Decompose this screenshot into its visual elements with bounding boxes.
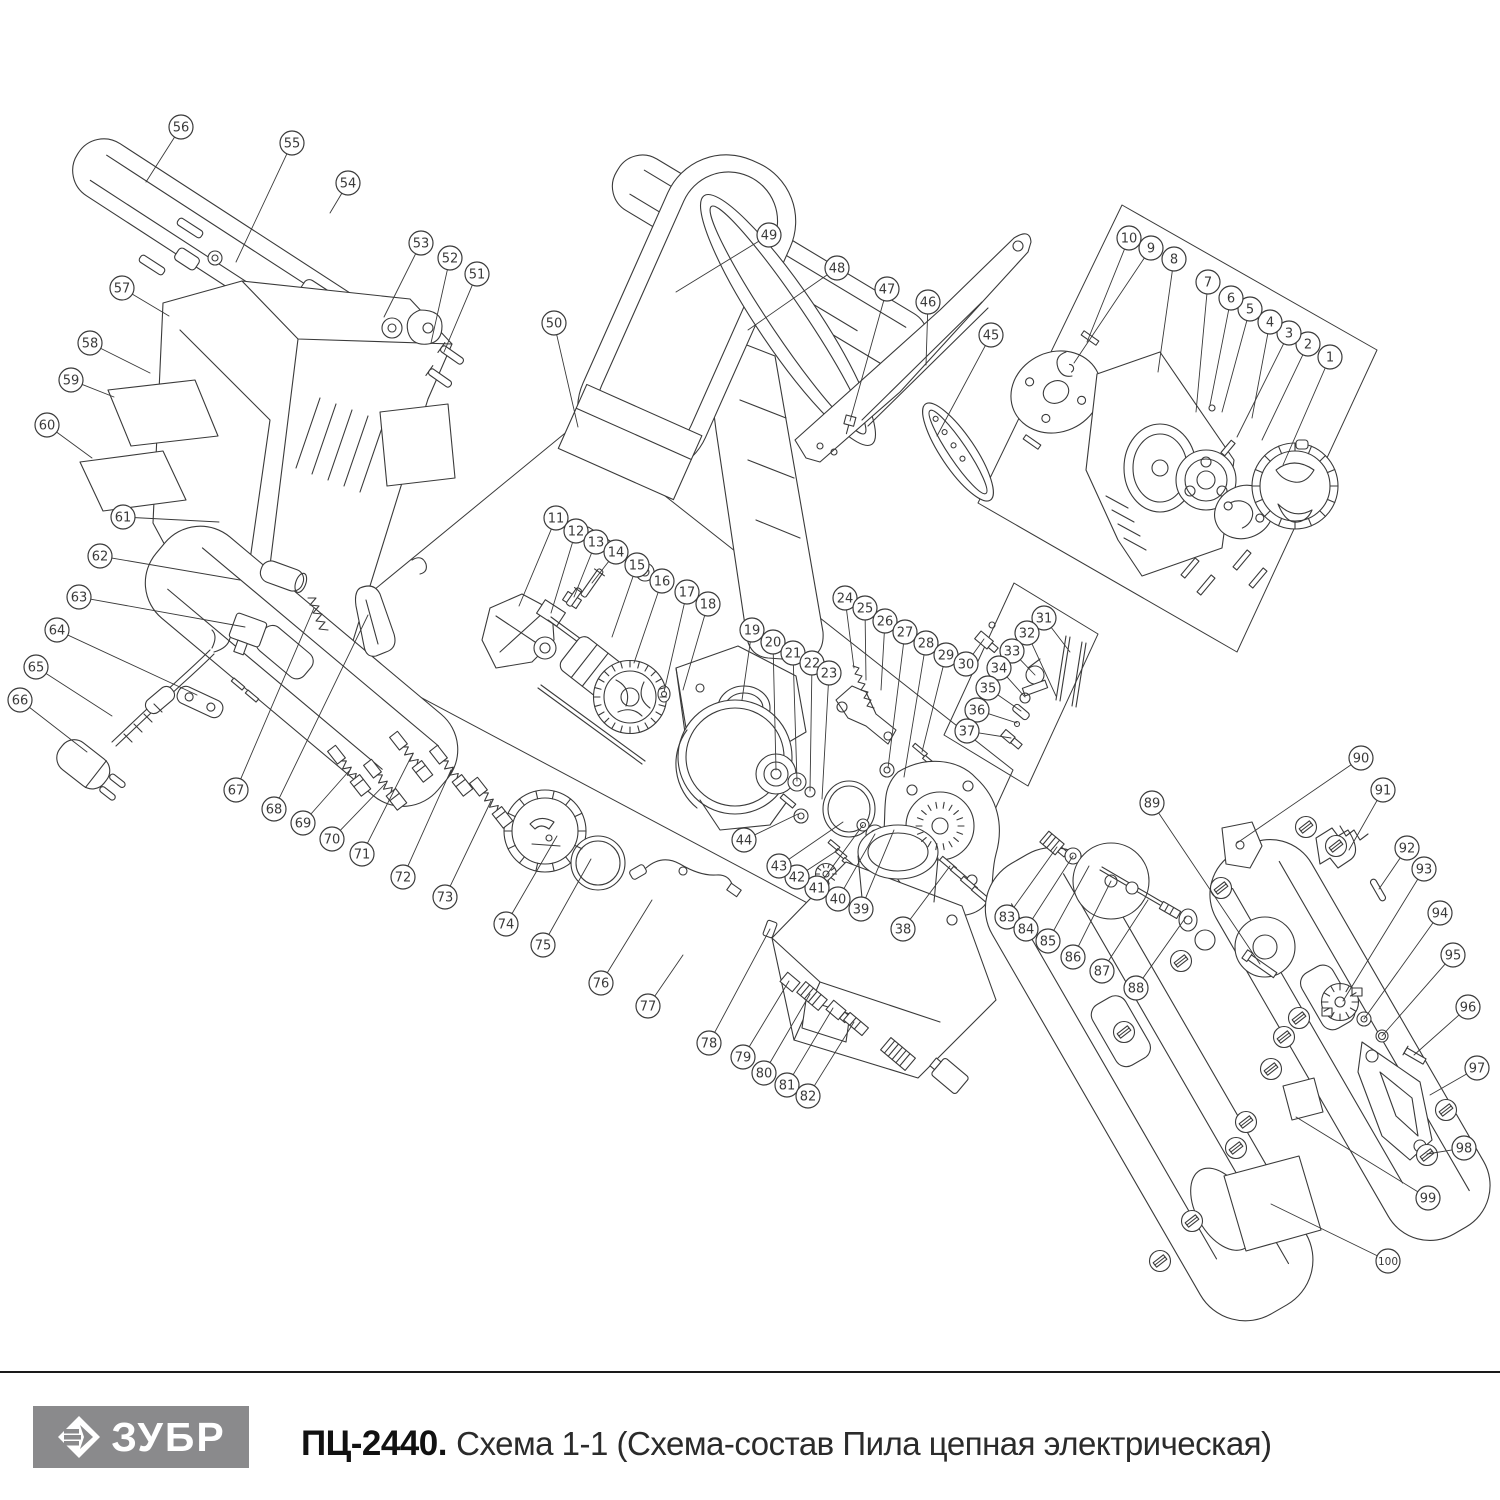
callout-7: 7	[1196, 270, 1220, 412]
callout-leader	[1252, 334, 1268, 418]
callout-number: 73	[437, 891, 454, 906]
callout-number: 10	[1121, 232, 1138, 247]
callout-number: 18	[700, 598, 717, 613]
callout-number: 95	[1445, 949, 1462, 964]
callout-92: 92	[1379, 836, 1419, 889]
callout-number: 21	[785, 647, 802, 662]
part-oring	[571, 836, 625, 890]
callout-number: 75	[535, 939, 552, 954]
callout-leader	[1074, 258, 1144, 363]
callout-28: 28	[904, 631, 938, 777]
callout-number: 66	[12, 694, 29, 709]
callout-number: 58	[82, 337, 99, 352]
callout-number: 86	[1065, 951, 1082, 966]
screw-symbol	[1150, 1251, 1171, 1272]
callout-number: 42	[789, 871, 806, 886]
callout-9: 9	[1074, 236, 1163, 363]
screw-symbol	[1261, 1059, 1282, 1080]
callout-leader	[998, 695, 1021, 711]
callout-number: 68	[266, 803, 283, 818]
callout-number: 35	[980, 682, 997, 697]
callout-leader	[715, 929, 770, 1032]
callout-number: 84	[1018, 923, 1035, 938]
callout-number: 13	[588, 536, 605, 551]
callout-number: 64	[49, 624, 66, 639]
callout-number: 41	[809, 882, 826, 897]
callout-16: 16	[634, 569, 674, 663]
callout-number: 43	[771, 860, 788, 875]
callout-36: 36	[965, 698, 1017, 723]
callout-leader	[519, 529, 551, 606]
callout-number: 88	[1128, 982, 1145, 997]
callout-number: 28	[918, 637, 935, 652]
callout-leader	[68, 635, 197, 695]
callout-number: 31	[1036, 612, 1053, 627]
callout-76: 76	[589, 900, 652, 995]
part-chain-segment	[911, 394, 1004, 509]
callout-leader	[789, 822, 843, 859]
callout-29: 29	[922, 643, 958, 752]
callout-number: 96	[1460, 1001, 1477, 1016]
callout-leader	[1364, 923, 1433, 1019]
callout-number: 72	[395, 871, 412, 886]
callout-number: 11	[548, 512, 565, 527]
callout-number: 23	[821, 667, 838, 682]
callout-number: 65	[28, 661, 45, 676]
callout-leader	[749, 981, 789, 1047]
callout-leader	[888, 644, 904, 768]
callout-leader	[1051, 628, 1070, 652]
callout-number: 16	[654, 575, 671, 590]
callout-2: 2	[1262, 332, 1320, 440]
callout-leader	[607, 900, 652, 973]
callout-number: 4	[1266, 316, 1274, 331]
callout-leader	[634, 592, 658, 663]
callout-number: 77	[640, 1000, 657, 1015]
callout-number: 36	[969, 704, 986, 719]
callout-number: 45	[983, 329, 1000, 344]
callout-number: 91	[1375, 784, 1392, 799]
callout-number: 59	[63, 374, 80, 389]
callout-number: 87	[1094, 965, 1111, 980]
zubr-diamond-icon	[56, 1414, 102, 1460]
callout-leader	[444, 285, 472, 352]
callout-91: 91	[1349, 778, 1395, 850]
callout-leader	[1379, 858, 1400, 889]
callout-number: 54	[340, 177, 357, 192]
callout-number: 9	[1147, 242, 1155, 257]
callout-number: 71	[354, 848, 371, 863]
callout-70: 70	[320, 784, 385, 851]
callout-leader	[1196, 294, 1207, 412]
brand-name: ЗУБР	[111, 1417, 225, 1458]
callout-94: 94	[1364, 901, 1452, 1019]
callout-number: 50	[546, 317, 563, 332]
callout-number: 63	[71, 591, 88, 606]
callout-number: 8	[1170, 253, 1178, 268]
screw-symbol	[1436, 1100, 1457, 1121]
screw-symbol	[1171, 951, 1192, 972]
callout-number: 74	[498, 918, 515, 933]
screw-symbol	[1296, 817, 1317, 838]
callout-number: 56	[173, 121, 190, 136]
callout-leader	[822, 685, 828, 799]
callout-26: 26	[873, 609, 897, 690]
callout-number: 46	[920, 296, 937, 311]
callout-69: 69	[291, 771, 349, 835]
callout-number: 24	[837, 592, 854, 607]
callout-leader	[1414, 1015, 1459, 1055]
callout-number: 44	[736, 834, 753, 849]
callout-leader	[988, 714, 1017, 723]
callout-leader	[29, 707, 87, 752]
screw-symbol	[1326, 836, 1347, 857]
callout-number: 79	[735, 1051, 752, 1066]
callout-number: 57	[114, 282, 131, 297]
callout-number: 55	[284, 137, 301, 152]
callout-number: 93	[1416, 863, 1433, 878]
callout-24: 24	[833, 586, 857, 668]
callout-66: 66	[8, 688, 87, 752]
callout-number: 90	[1353, 752, 1370, 767]
callout-65: 65	[24, 655, 112, 716]
screw-symbol	[1182, 1211, 1203, 1232]
model-number: ПЦ-2440.	[301, 1424, 447, 1463]
callout-leader	[311, 771, 349, 814]
screw-symbol	[1114, 1022, 1135, 1043]
callout-leader	[655, 955, 683, 996]
callout-73: 73	[433, 801, 491, 909]
footer-divider	[0, 1371, 1500, 1373]
callout-leader	[1237, 344, 1284, 437]
callout-leader	[450, 801, 491, 886]
callout-leader	[101, 348, 150, 373]
callout-number: 80	[756, 1067, 773, 1082]
callout-leader	[1382, 964, 1445, 1036]
callout-number: 27	[897, 626, 914, 641]
callout-leader	[881, 633, 884, 690]
part-power-cord	[51, 630, 230, 806]
callout-number: 67	[228, 784, 245, 799]
callout-77: 77	[636, 955, 683, 1018]
callout-60: 60	[35, 413, 92, 458]
callout-number: 52	[442, 252, 459, 267]
zubr-logo: ЗУБР	[33, 1406, 249, 1468]
screw-symbol	[1274, 1027, 1295, 1048]
callout-number: 100	[1378, 1256, 1398, 1268]
callout-number: 81	[779, 1079, 796, 1094]
callout-leader	[1222, 321, 1247, 412]
callout-number: 29	[938, 649, 955, 664]
callout-leader	[810, 675, 812, 791]
callout-leader	[847, 610, 854, 668]
screw-symbol	[1226, 1138, 1247, 1159]
callout-number: 47	[879, 283, 896, 298]
callout-number: 38	[895, 923, 912, 938]
screw-symbol	[1289, 1008, 1310, 1029]
callout-number: 40	[830, 893, 847, 908]
callout-leader	[922, 667, 943, 752]
callout-number: 83	[999, 911, 1016, 926]
callout-number: 94	[1432, 907, 1449, 922]
callout-number: 17	[679, 586, 696, 601]
screw-symbol	[1236, 1112, 1257, 1133]
callout-54: 54	[330, 171, 360, 213]
callout-number: 26	[877, 615, 894, 630]
callout-number: 7	[1204, 276, 1212, 291]
callout-number: 60	[39, 419, 56, 434]
callout-number: 19	[744, 624, 761, 639]
callout-number: 5	[1246, 303, 1254, 318]
callout-50: 50	[542, 311, 578, 427]
callout-number: 2	[1304, 338, 1312, 353]
callout-15: 15	[612, 553, 649, 637]
callout-leader	[865, 620, 866, 680]
callout-number: 61	[115, 511, 132, 526]
callout-leader	[46, 674, 112, 716]
callout-leader	[904, 655, 924, 777]
callout-number: 62	[92, 550, 109, 565]
callout-leader	[57, 432, 92, 458]
callout-number: 39	[853, 903, 870, 918]
part-oil-hose	[629, 860, 742, 897]
callout-number: 1	[1326, 351, 1334, 366]
callout-number: 53	[413, 237, 430, 252]
callout-number: 6	[1227, 292, 1235, 307]
callout-number: 12	[568, 525, 585, 540]
callout-number: 92	[1399, 842, 1416, 857]
callout-number: 76	[593, 977, 610, 992]
callout-number: 85	[1040, 935, 1057, 950]
callout-leader	[1210, 310, 1229, 405]
callout-leader	[1349, 800, 1377, 850]
callout-leader	[557, 335, 578, 427]
callout-number: 34	[991, 662, 1008, 677]
callout-10: 10	[1087, 226, 1141, 342]
screw-symbol	[1417, 1145, 1438, 1166]
callout-number: 3	[1285, 327, 1293, 342]
callout-number: 48	[829, 262, 846, 277]
callout-number: 15	[629, 559, 646, 574]
callout-8: 8	[1158, 247, 1186, 372]
callout-95: 95	[1382, 943, 1465, 1036]
callout-number: 14	[608, 546, 625, 561]
callout-23: 23	[817, 661, 841, 799]
callout-58: 58	[78, 331, 150, 373]
callout-51: 51	[444, 262, 489, 352]
callout-number: 33	[1004, 645, 1021, 660]
callout-59: 59	[59, 368, 114, 397]
callout-number: 25	[857, 602, 874, 617]
callout-leader	[612, 576, 633, 637]
callout-44: 44	[732, 814, 798, 852]
sheet-title: ПЦ-2440. Схема 1-1 (Схема-состав Пила це…	[301, 1424, 1272, 1464]
callout-96: 96	[1414, 995, 1480, 1055]
callout-number: 70	[324, 833, 341, 848]
callout-leader	[1158, 271, 1172, 372]
callout-leader	[330, 193, 342, 213]
callout-leader	[937, 346, 985, 436]
callout-number: 20	[765, 636, 782, 651]
callout-number: 97	[1469, 1062, 1486, 1077]
callout-6: 6	[1210, 286, 1243, 405]
callout-57: 57	[110, 276, 169, 316]
callout-number: 49	[761, 229, 778, 244]
callout-number: 51	[469, 268, 486, 283]
callout-number: 30	[958, 658, 975, 673]
callout-leader	[592, 561, 609, 583]
sheet-subtitle: Схема 1-1 (Схема-состав Пила цепная элек…	[456, 1425, 1271, 1462]
callout-number: 69	[295, 817, 312, 832]
callout-4: 4	[1252, 310, 1282, 418]
callout-number: 37	[959, 725, 976, 740]
callout-number: 32	[1019, 627, 1036, 642]
callout-number: 98	[1456, 1142, 1473, 1157]
callout-37: 37	[955, 719, 1011, 743]
exploded-parts-diagram: 1234567891011121314151617181920212223242…	[0, 0, 1500, 1372]
callout-11: 11	[519, 506, 568, 606]
callout-number: 78	[701, 1037, 718, 1052]
callout-leader	[1007, 677, 1025, 697]
callout-number: 89	[1144, 797, 1161, 812]
callout-number: 82	[800, 1090, 817, 1105]
callout-number: 99	[1420, 1192, 1437, 1207]
callout-leader	[1262, 355, 1303, 440]
callout-78: 78	[697, 929, 770, 1055]
callout-leader	[755, 814, 798, 835]
callout-79: 79	[731, 981, 789, 1069]
